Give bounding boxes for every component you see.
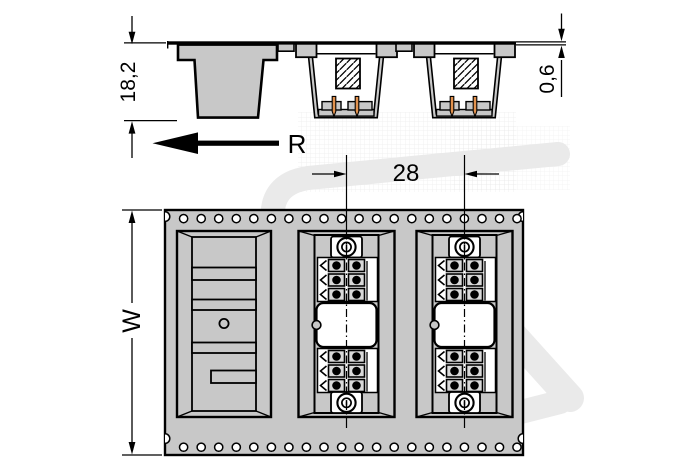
arrowhead-up xyxy=(129,121,136,133)
drawing-canvas: 18,2 0,6 R 28 xyxy=(0,0,697,472)
dimension-tape-thickness: 0,6 xyxy=(536,14,565,98)
dimension-pocket-depth: 18,2 xyxy=(117,16,177,158)
sprocket-hole xyxy=(478,443,486,451)
sprocket-hole xyxy=(320,215,328,223)
sprocket-hole xyxy=(355,215,363,223)
sprocket-hole xyxy=(408,443,416,451)
sprocket-hole xyxy=(478,215,486,223)
sprocket-hole xyxy=(197,215,205,223)
unreel-direction-label: R xyxy=(288,129,307,159)
edge-notch xyxy=(165,434,170,444)
sprocket-hole xyxy=(197,443,205,451)
sprocket-hole xyxy=(267,443,275,451)
sprocket-hole xyxy=(495,443,503,451)
sprocket-hole xyxy=(285,443,293,451)
loaded-pocket-side-2 xyxy=(396,44,515,117)
sprocket-hole xyxy=(250,215,258,223)
sprocket-hole xyxy=(302,215,310,223)
sprocket-hole xyxy=(373,215,381,223)
arrowhead-up xyxy=(558,46,565,58)
empty-pocket-plan xyxy=(177,231,271,417)
unreel-arrow-head xyxy=(153,132,199,154)
edge-notch xyxy=(165,212,170,222)
edge-notch xyxy=(518,434,523,444)
sprocket-hole xyxy=(180,215,188,223)
sprocket-hole xyxy=(390,215,398,223)
sprocket-hole xyxy=(215,443,223,451)
tape-width-label: W xyxy=(118,309,146,333)
sprocket-hole xyxy=(443,215,451,223)
sprocket-hole xyxy=(355,443,363,451)
unreel-direction: R xyxy=(153,129,307,159)
sprocket-hole xyxy=(250,443,258,451)
sprocket-hole xyxy=(232,443,240,451)
sprocket-hole xyxy=(495,215,503,223)
sprocket-hole xyxy=(338,443,346,451)
sprocket-hole xyxy=(215,215,223,223)
sprocket-hole xyxy=(408,215,416,223)
plan-view xyxy=(165,210,523,455)
unreel-arrow-shaft xyxy=(197,141,279,146)
pocket-center-hole xyxy=(219,319,228,328)
sprocket-hole xyxy=(460,443,468,451)
arrowhead-down xyxy=(129,442,136,455)
tape-packaging-drawing: 18,2 0,6 R 28 xyxy=(0,0,697,472)
sprocket-hole xyxy=(338,215,346,223)
pocket-rib xyxy=(192,300,256,311)
sprocket-hole xyxy=(320,443,328,451)
sprocket-hole xyxy=(425,443,433,451)
pocket-rib xyxy=(192,268,256,281)
arrowhead-down xyxy=(558,29,565,41)
loaded-pocket-side-1 xyxy=(278,44,397,117)
tape-thickness-label: 0,6 xyxy=(536,64,559,93)
sprocket-hole xyxy=(513,215,521,223)
pocket-slot xyxy=(211,371,256,384)
pitch-label: 28 xyxy=(393,160,420,187)
sprocket-hole xyxy=(267,215,275,223)
pocket-rib xyxy=(192,343,256,354)
sprocket-hole xyxy=(285,215,293,223)
dimension-tape-width: W xyxy=(118,210,162,455)
arrowhead-up xyxy=(129,211,136,224)
sprocket-hole xyxy=(390,443,398,451)
sprocket-hole xyxy=(513,443,521,451)
sprocket-hole xyxy=(443,443,451,451)
sprocket-hole xyxy=(425,215,433,223)
sprocket-hole xyxy=(302,443,310,451)
sprocket-hole xyxy=(180,443,188,451)
pocket-depth-label: 18,2 xyxy=(117,62,140,103)
empty-pocket-side xyxy=(178,45,277,118)
sprocket-hole xyxy=(232,215,240,223)
side-view xyxy=(167,41,566,118)
sprocket-hole xyxy=(373,443,381,451)
